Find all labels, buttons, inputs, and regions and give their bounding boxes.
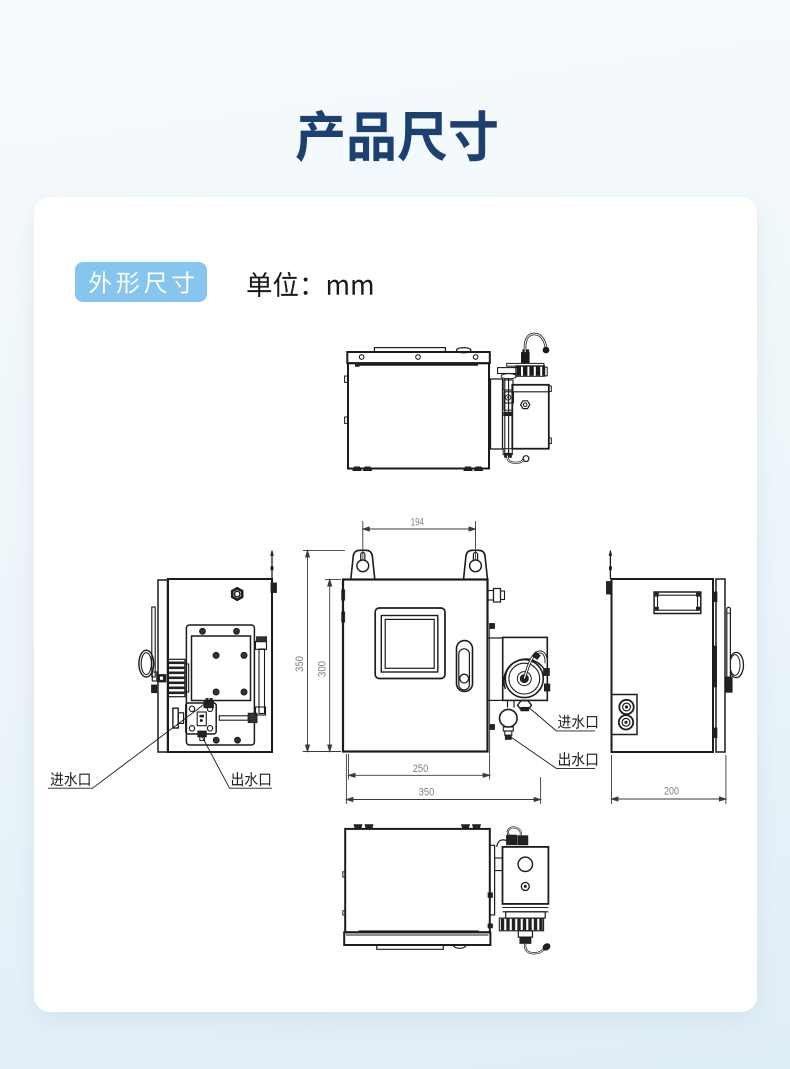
svg-text:194: 194 xyxy=(411,517,424,529)
svg-text:350: 350 xyxy=(419,787,435,799)
svg-text:250: 250 xyxy=(413,763,429,775)
svg-text:300: 300 xyxy=(317,661,329,677)
svg-text:350: 350 xyxy=(294,656,306,672)
svg-text:200: 200 xyxy=(664,786,679,798)
